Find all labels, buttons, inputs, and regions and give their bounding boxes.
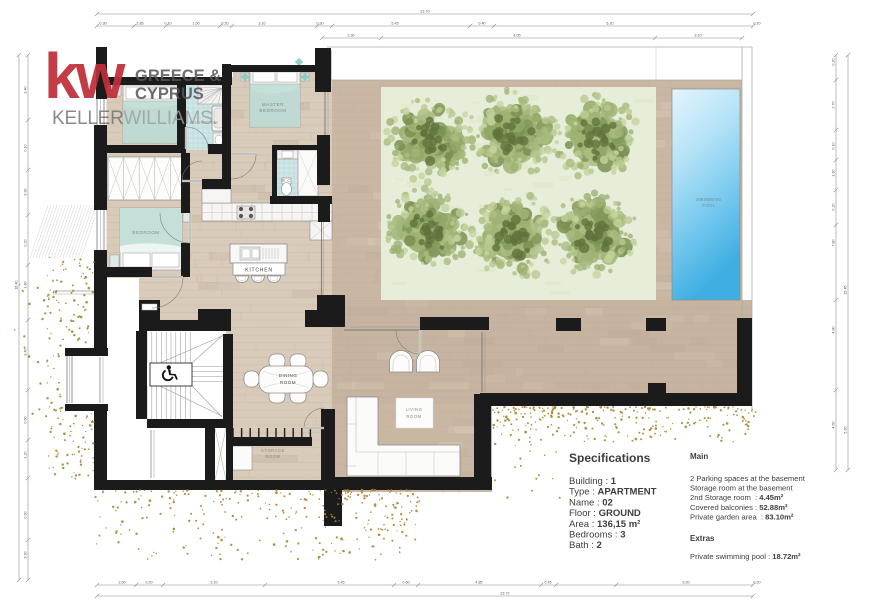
svg-text:5.30: 5.30: [844, 426, 848, 433]
svg-text:3.40: 3.40: [24, 86, 28, 93]
svg-text:3.40: 3.40: [24, 348, 28, 355]
svg-text:1.50: 1.50: [192, 21, 199, 25]
svg-text:ROOM: ROOM: [406, 414, 421, 419]
svg-text:Private garden area : 83.10m²: Private garden area : 83.10m²: [690, 512, 794, 521]
svg-text:6.20: 6.20: [606, 21, 613, 25]
svg-text:0.20: 0.20: [832, 203, 836, 210]
svg-text:2.70: 2.70: [832, 101, 836, 108]
svg-text:Main: Main: [690, 452, 708, 461]
svg-text:0.20: 0.20: [753, 21, 760, 25]
svg-text:0.30: 0.30: [316, 21, 323, 25]
svg-text:MASTER: MASTER: [262, 102, 284, 107]
svg-text:KITCHEN: KITCHEN: [245, 268, 273, 274]
svg-text:W.C: W.C: [281, 178, 291, 183]
svg-text:15.45: 15.45: [844, 285, 848, 294]
svg-text:KELLERWILLIAMS.: KELLERWILLIAMS.: [52, 108, 218, 129]
svg-text:0.10: 0.10: [164, 21, 171, 25]
svg-text:0.20: 0.20: [145, 580, 152, 584]
svg-text:1.80: 1.80: [24, 281, 28, 288]
svg-text:3.10: 3.10: [210, 580, 217, 584]
svg-text:Covered balconies : 52.88m²: Covered balconies : 52.88m²: [690, 503, 788, 512]
svg-text:7.80: 7.80: [832, 239, 836, 246]
svg-text:STORAGE: STORAGE: [261, 448, 285, 453]
svg-text:Name : 02: Name : 02: [569, 497, 613, 508]
svg-text:Floor : GROUND: Floor : GROUND: [569, 508, 641, 519]
svg-text:3.45: 3.45: [337, 580, 344, 584]
svg-text:9.20: 9.20: [682, 580, 689, 584]
svg-text:4.80: 4.80: [832, 326, 836, 333]
svg-text:0.45: 0.45: [544, 580, 551, 584]
svg-text:Bedrooms : 3: Bedrooms : 3: [569, 530, 626, 541]
svg-text:4.60: 4.60: [832, 421, 836, 428]
svg-text:0.10: 0.10: [24, 144, 28, 151]
svg-text:Extras: Extras: [690, 534, 715, 543]
svg-text:Storage room at the basement: Storage room at the basement: [690, 484, 793, 493]
svg-text:GREECE &: GREECE &: [135, 67, 221, 85]
svg-text:0.60: 0.60: [24, 416, 28, 423]
svg-text:0.20: 0.20: [221, 21, 228, 25]
svg-text:3.10: 3.10: [694, 33, 701, 37]
svg-text:CYPRUS: CYPRUS: [135, 85, 204, 103]
svg-text:8.05: 8.05: [513, 33, 520, 37]
svg-text:0.20: 0.20: [832, 58, 836, 65]
svg-text:16.40: 16.40: [15, 280, 19, 289]
svg-text:2.85: 2.85: [136, 21, 143, 25]
svg-text:2 Parking spaces at the baseme: 2 Parking spaces at the basement: [690, 474, 806, 483]
svg-text:0.40: 0.40: [478, 21, 485, 25]
svg-text:1.50: 1.50: [118, 580, 125, 584]
svg-text:23.70: 23.70: [420, 9, 429, 13]
svg-text:5.45: 5.45: [391, 21, 398, 25]
svg-text:3.10: 3.10: [258, 21, 265, 25]
svg-text:BEDROOM: BEDROOM: [259, 108, 286, 113]
svg-text:3.30: 3.30: [24, 188, 28, 195]
svg-text:Type : APARTMENT: Type : APARTMENT: [569, 487, 657, 498]
svg-text:Area : 136,15 m²: Area : 136,15 m²: [569, 519, 640, 530]
svg-text:ROOM: ROOM: [280, 380, 296, 385]
svg-text:0.20: 0.20: [24, 239, 28, 246]
svg-text:SWIMMING: SWIMMING: [696, 197, 722, 202]
svg-text:POOL: POOL: [702, 203, 716, 208]
svg-text:ROOM: ROOM: [265, 454, 280, 459]
svg-text:LIVING: LIVING: [406, 407, 423, 412]
svg-text:3.30: 3.30: [24, 551, 28, 558]
svg-text:1.90: 1.90: [832, 169, 836, 176]
svg-text:2.30: 2.30: [347, 33, 354, 37]
svg-text:Bath : 2: Bath : 2: [569, 540, 602, 551]
svg-text:0.30: 0.30: [99, 21, 106, 25]
svg-text:2nd Storage room : 4.45m²: 2nd Storage room : 4.45m²: [690, 493, 784, 502]
svg-text:Private swimming pool : 18.72m: Private swimming pool : 18.72m²: [690, 552, 801, 561]
svg-text:kw: kw: [44, 40, 126, 112]
svg-text:0.10: 0.10: [832, 142, 836, 149]
svg-text:Specifications: Specifications: [569, 451, 651, 465]
svg-text:4.85: 4.85: [475, 580, 482, 584]
svg-text:23.72: 23.72: [500, 591, 509, 595]
svg-text:DINING: DINING: [279, 373, 298, 378]
svg-text:0.20: 0.20: [753, 580, 760, 584]
svg-text:Building : 1: Building : 1: [569, 476, 617, 487]
svg-text:0.60: 0.60: [402, 580, 409, 584]
svg-text:0.30: 0.30: [24, 511, 28, 518]
svg-text:BEDROOM: BEDROOM: [132, 230, 159, 235]
svg-text:1.20: 1.20: [24, 451, 28, 458]
